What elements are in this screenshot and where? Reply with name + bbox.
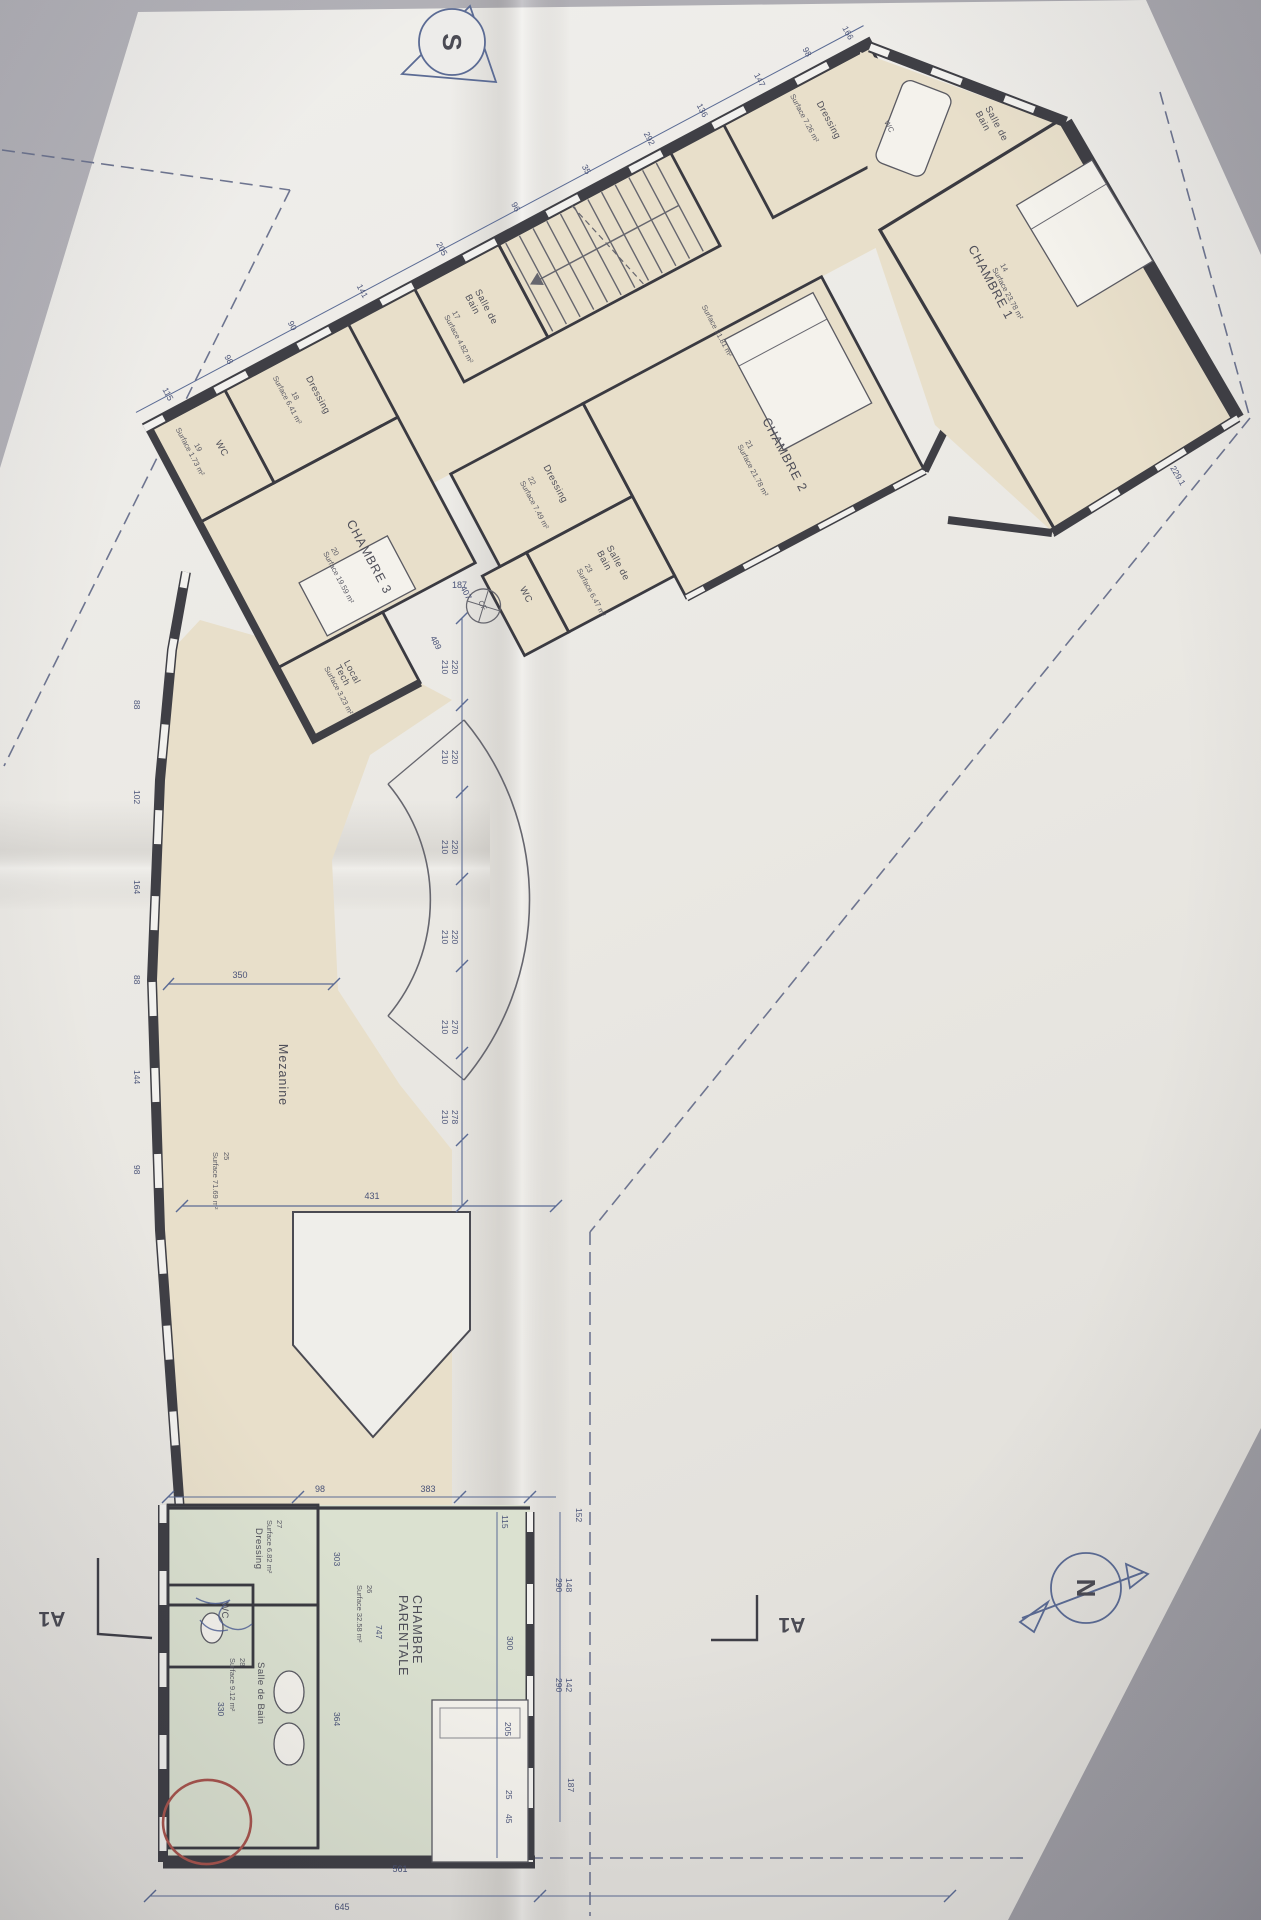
dim-pair: 270210 [440,1020,460,1034]
dim-364: 364 [332,1712,342,1726]
dim-383: 383 [420,1484,435,1494]
dim-350: 350 [232,970,247,980]
dim-25: 25 [504,1790,514,1800]
section-label-right: A1 [778,1613,805,1636]
section-label-left: A1 [38,1607,65,1630]
dim-pair: 220210 [440,840,460,854]
wc-suite-label: WC [219,1602,230,1619]
mezzanine-number: 25 [222,1152,231,1160]
dim-left: 88 [132,975,142,985]
sdb28-label: Salle de Bain [255,1662,266,1724]
compass-north-letter: N [1071,1579,1101,1598]
dim-left: 164 [132,880,142,894]
dim-747: 747 [374,1625,384,1639]
dim-left: 98 [132,1165,142,1175]
dim-r187: 187 [566,1778,576,1792]
dim-187: 187 [452,580,467,590]
dim-left: 102 [132,790,142,804]
dressing27-label: Dressing [253,1528,264,1570]
plan-canvas: Mezanine 25Surface 71.69 m² 350 431 2202… [0,0,1261,1920]
dim-pair: 220210 [440,660,460,674]
dim-645: 645 [334,1902,349,1912]
dim-pair-148-290: 148290 [554,1578,574,1592]
dim-pair: 220210 [440,930,460,944]
basin-1 [274,1671,304,1713]
dim-pair-142-290: 142290 [554,1678,574,1692]
dim-98: 98 [315,1484,325,1494]
dim-left: 144 [132,1070,142,1084]
dim-431: 431 [364,1191,379,1201]
dim-115: 115 [500,1515,510,1529]
dim-45: 45 [504,1814,514,1824]
dim-303: 303 [332,1552,342,1566]
dim-205: 205 [503,1722,513,1736]
dim-330: 330 [216,1702,226,1716]
dim-561: 561 [392,1864,407,1874]
compass-south-letter: S [437,33,467,50]
dim-300: 300 [505,1636,515,1650]
dim-pair: 278210 [440,1110,460,1124]
dim-left: 88 [132,700,142,710]
mezzanine-label: Mezanine [276,1044,290,1106]
dim-152: 152 [574,1508,584,1522]
dim-pair: 220210 [440,750,460,764]
floor-plan-photo: Mezanine 25Surface 71.69 m² 350 431 2202… [0,0,1261,1920]
parentale-label: CHAMBREPARENTALE [396,1595,424,1676]
basin-2 [274,1723,304,1765]
